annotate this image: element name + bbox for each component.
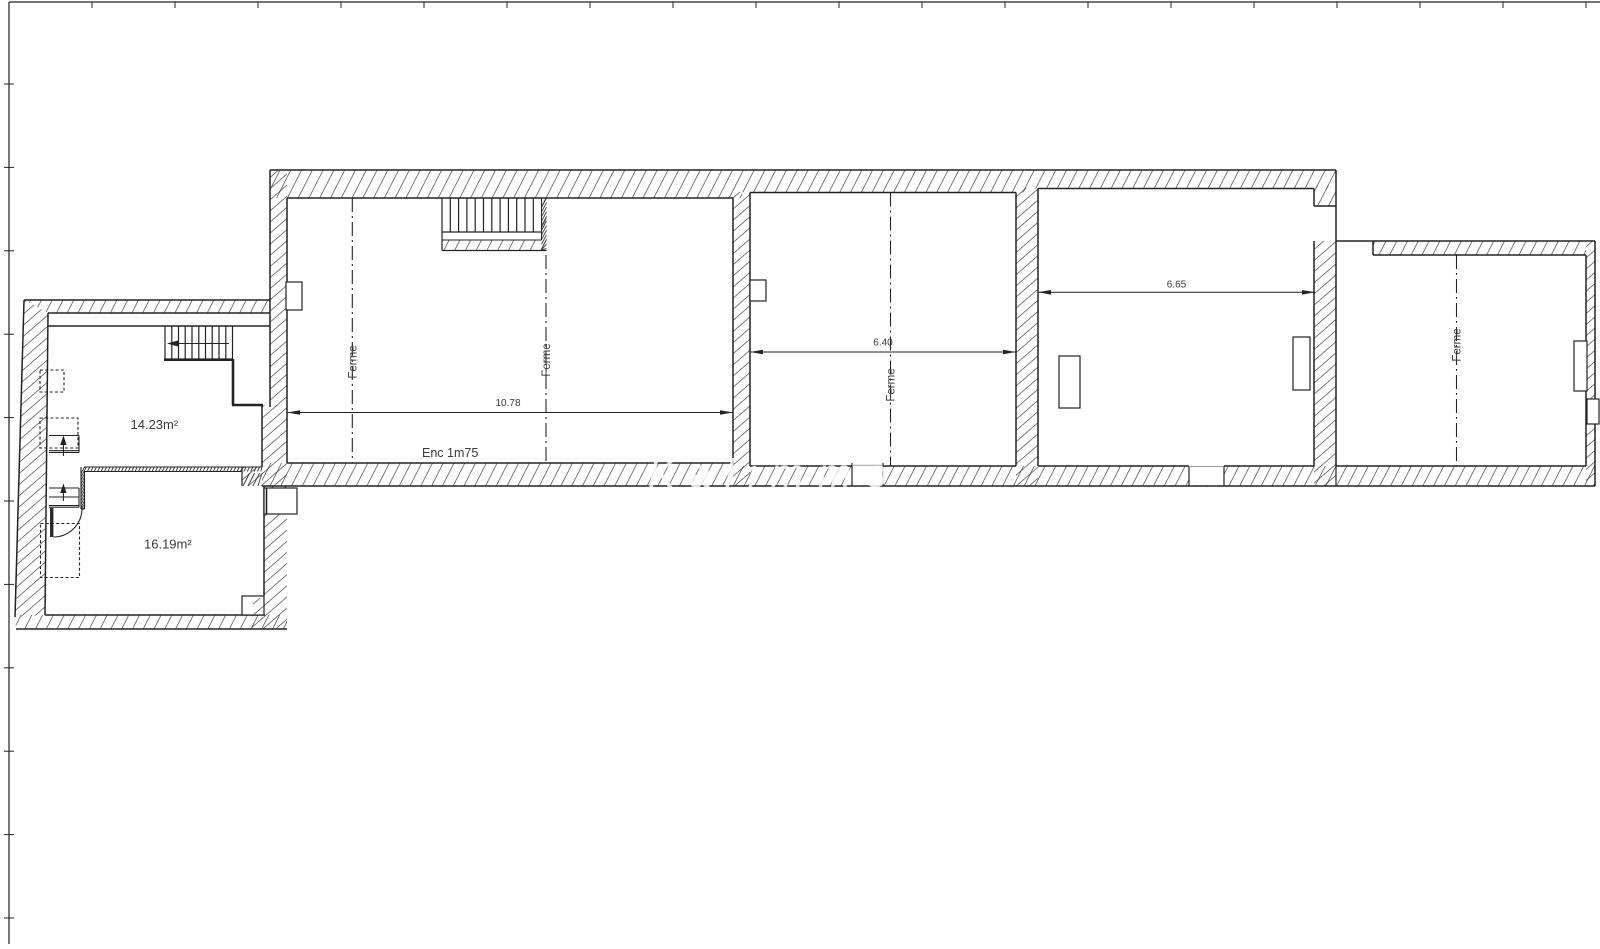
svg-text:Enc 1m75: Enc 1m75 xyxy=(422,446,478,460)
svg-text:14.23m²: 14.23m² xyxy=(131,417,179,432)
svg-text:Ferme: Ferme xyxy=(541,343,553,376)
svg-text:Ferme: Ferme xyxy=(347,345,359,378)
svg-text:Ferme: Ferme xyxy=(1452,328,1464,361)
svg-text:6.40: 6.40 xyxy=(873,338,893,349)
svg-text:16.19m²: 16.19m² xyxy=(144,537,192,552)
svg-text:10.78: 10.78 xyxy=(495,398,520,409)
svg-text:Kalimmo: Kalimmo xyxy=(648,452,902,496)
svg-text:6.65: 6.65 xyxy=(1167,280,1187,291)
svg-text:Ferme: Ferme xyxy=(886,368,898,401)
